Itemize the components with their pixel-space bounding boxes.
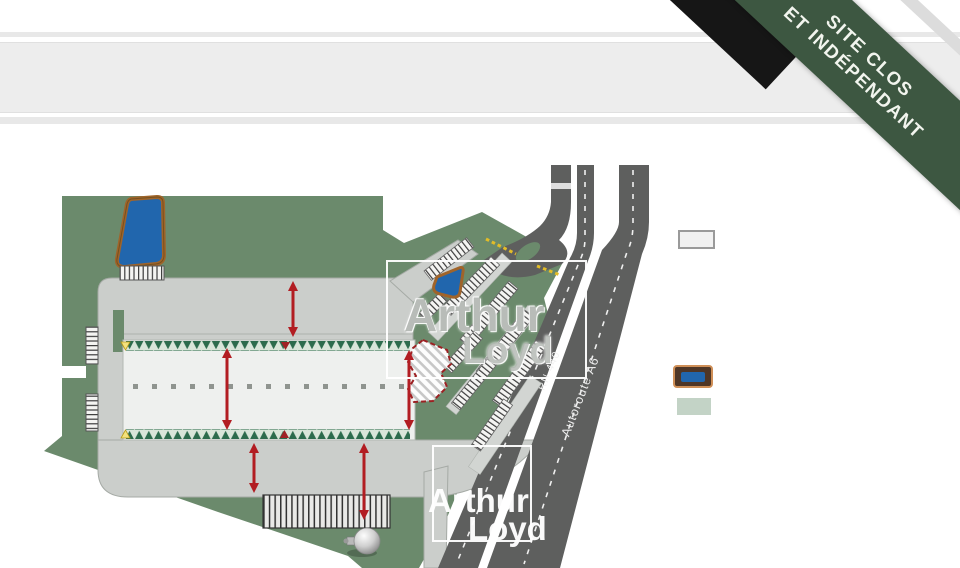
warehouse-building xyxy=(121,340,415,440)
legend-swatch-pond-water xyxy=(681,372,705,382)
parking-strip-left-2 xyxy=(86,394,98,431)
site-plan-map: RN 440 Autoroute A6 xyxy=(0,0,960,568)
legend-swatch-green-space xyxy=(677,398,711,415)
median-island xyxy=(113,310,124,352)
parking-strip-left-1 xyxy=(86,327,98,364)
parking-strip-bottom xyxy=(263,495,390,528)
tree-row-top xyxy=(126,341,410,351)
parcel-notch xyxy=(58,366,86,378)
parking-strip-under-pond xyxy=(120,266,164,280)
building-center-dotted-line xyxy=(131,383,407,389)
entrance-crosswalk xyxy=(551,183,571,189)
tree-row-bottom xyxy=(126,429,410,439)
site-plan-canvas: RN 440 Autoroute A6 xyxy=(0,0,960,568)
legend-swatch-pond xyxy=(673,365,713,388)
legend-swatch-building xyxy=(678,230,715,249)
